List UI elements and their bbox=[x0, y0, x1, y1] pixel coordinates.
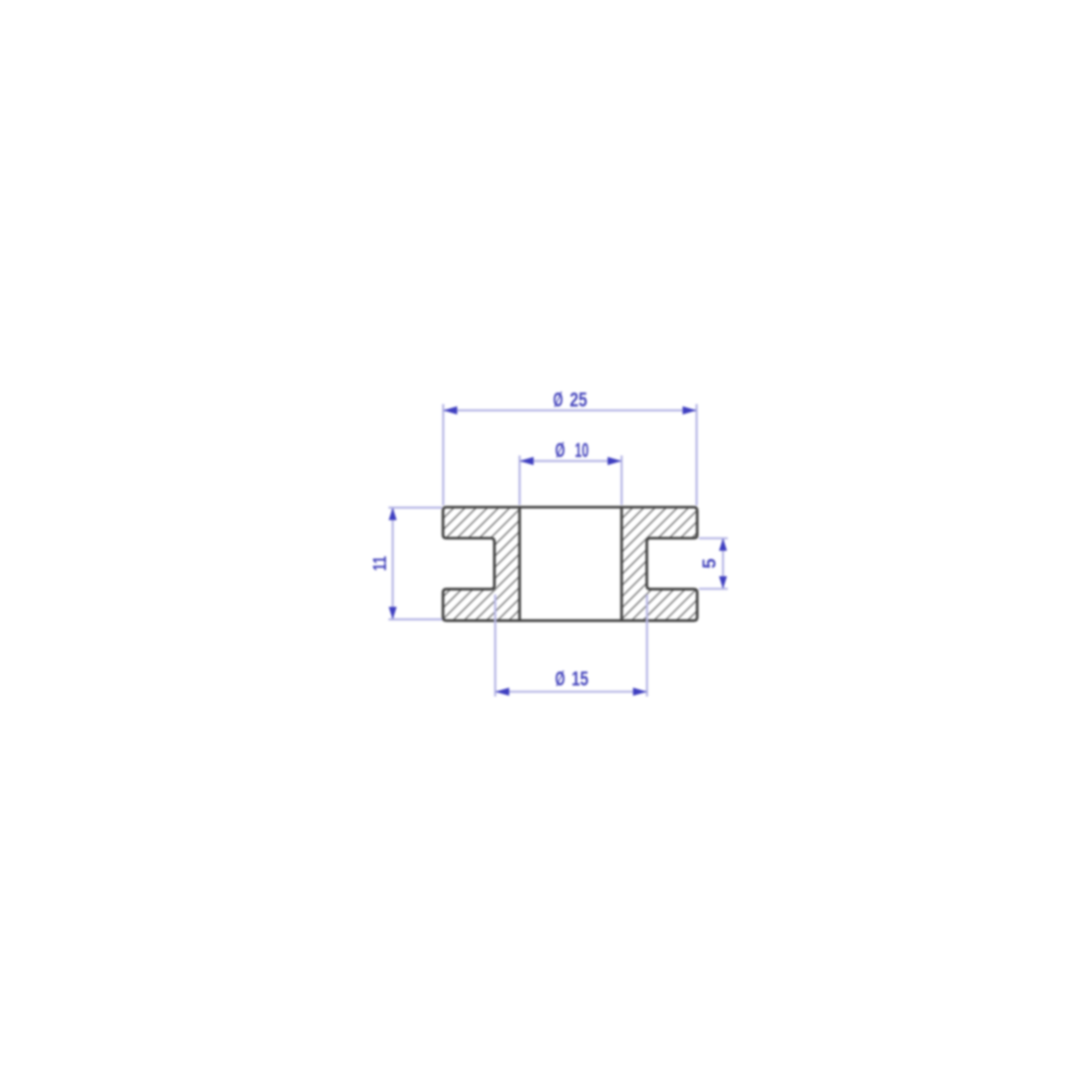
svg-text:15: 15 bbox=[572, 668, 589, 691]
svg-text:25: 25 bbox=[570, 389, 588, 412]
svg-text:11: 11 bbox=[369, 556, 390, 571]
svg-text:5: 5 bbox=[699, 558, 720, 568]
svg-text:Ø: Ø bbox=[555, 667, 565, 690]
svg-text:Ø: Ø bbox=[553, 388, 563, 411]
svg-text:Ø: Ø bbox=[555, 439, 565, 462]
svg-text:10: 10 bbox=[575, 439, 589, 462]
